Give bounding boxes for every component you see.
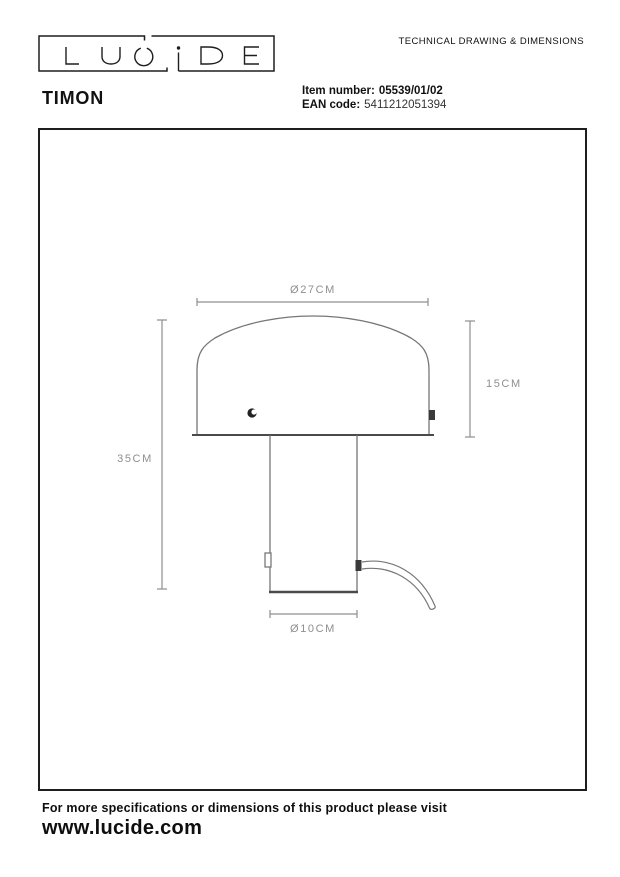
dim-label-base-diameter: Ø10CM — [290, 623, 336, 635]
ean-code-label: EAN code: — [302, 99, 360, 111]
footer-text: For more specifications or dimensions of… — [42, 801, 447, 815]
item-number-value: 05539/01/02 — [379, 85, 443, 97]
product-info: Item number:05539/01/02 EAN code:5411212… — [302, 84, 446, 112]
switch-knob-icon — [247, 408, 256, 417]
page-title: TECHNICAL DRAWING & DIMENSIONS — [399, 36, 584, 47]
dim-line-shade-diameter — [197, 298, 428, 306]
dim-line-base-diameter — [270, 610, 357, 618]
cord-connector — [356, 560, 362, 571]
dim-line-shade-height — [465, 321, 475, 437]
lucide-logo: LUCIDE — [38, 35, 275, 72]
base-switch — [265, 553, 271, 567]
power-cord — [362, 561, 435, 609]
footer-website-link[interactable]: www.lucide.com — [42, 817, 447, 840]
lamp-shade-outline — [197, 316, 429, 435]
item-number-row: Item number:05539/01/02 — [302, 84, 446, 98]
ean-code-value: 5411212051394 — [364, 99, 446, 111]
lamp-base-outline — [270, 435, 357, 592]
dim-label-shade-diameter: Ø27CM — [290, 284, 336, 296]
dim-label-total-height: 35CM — [117, 453, 153, 465]
dim-line-total-height — [157, 320, 167, 589]
product-name: TIMON — [42, 88, 104, 109]
lucide-logo-icon — [38, 35, 275, 72]
footer: For more specifications or dimensions of… — [42, 801, 447, 840]
technical-drawing: Ø27CM 35CM 15CM — [40, 130, 585, 789]
spec-sheet-page: LUCIDE TECHNICAL DRAWING & DIMENSIONS TI… — [0, 0, 620, 877]
dim-label-shade-height: 15CM — [486, 378, 522, 390]
ean-code-row: EAN code:5411212051394 — [302, 98, 446, 112]
item-number-label: Item number: — [302, 85, 375, 97]
drawing-frame: Ø27CM 35CM 15CM — [38, 128, 587, 791]
shade-side-fitting — [429, 410, 435, 420]
